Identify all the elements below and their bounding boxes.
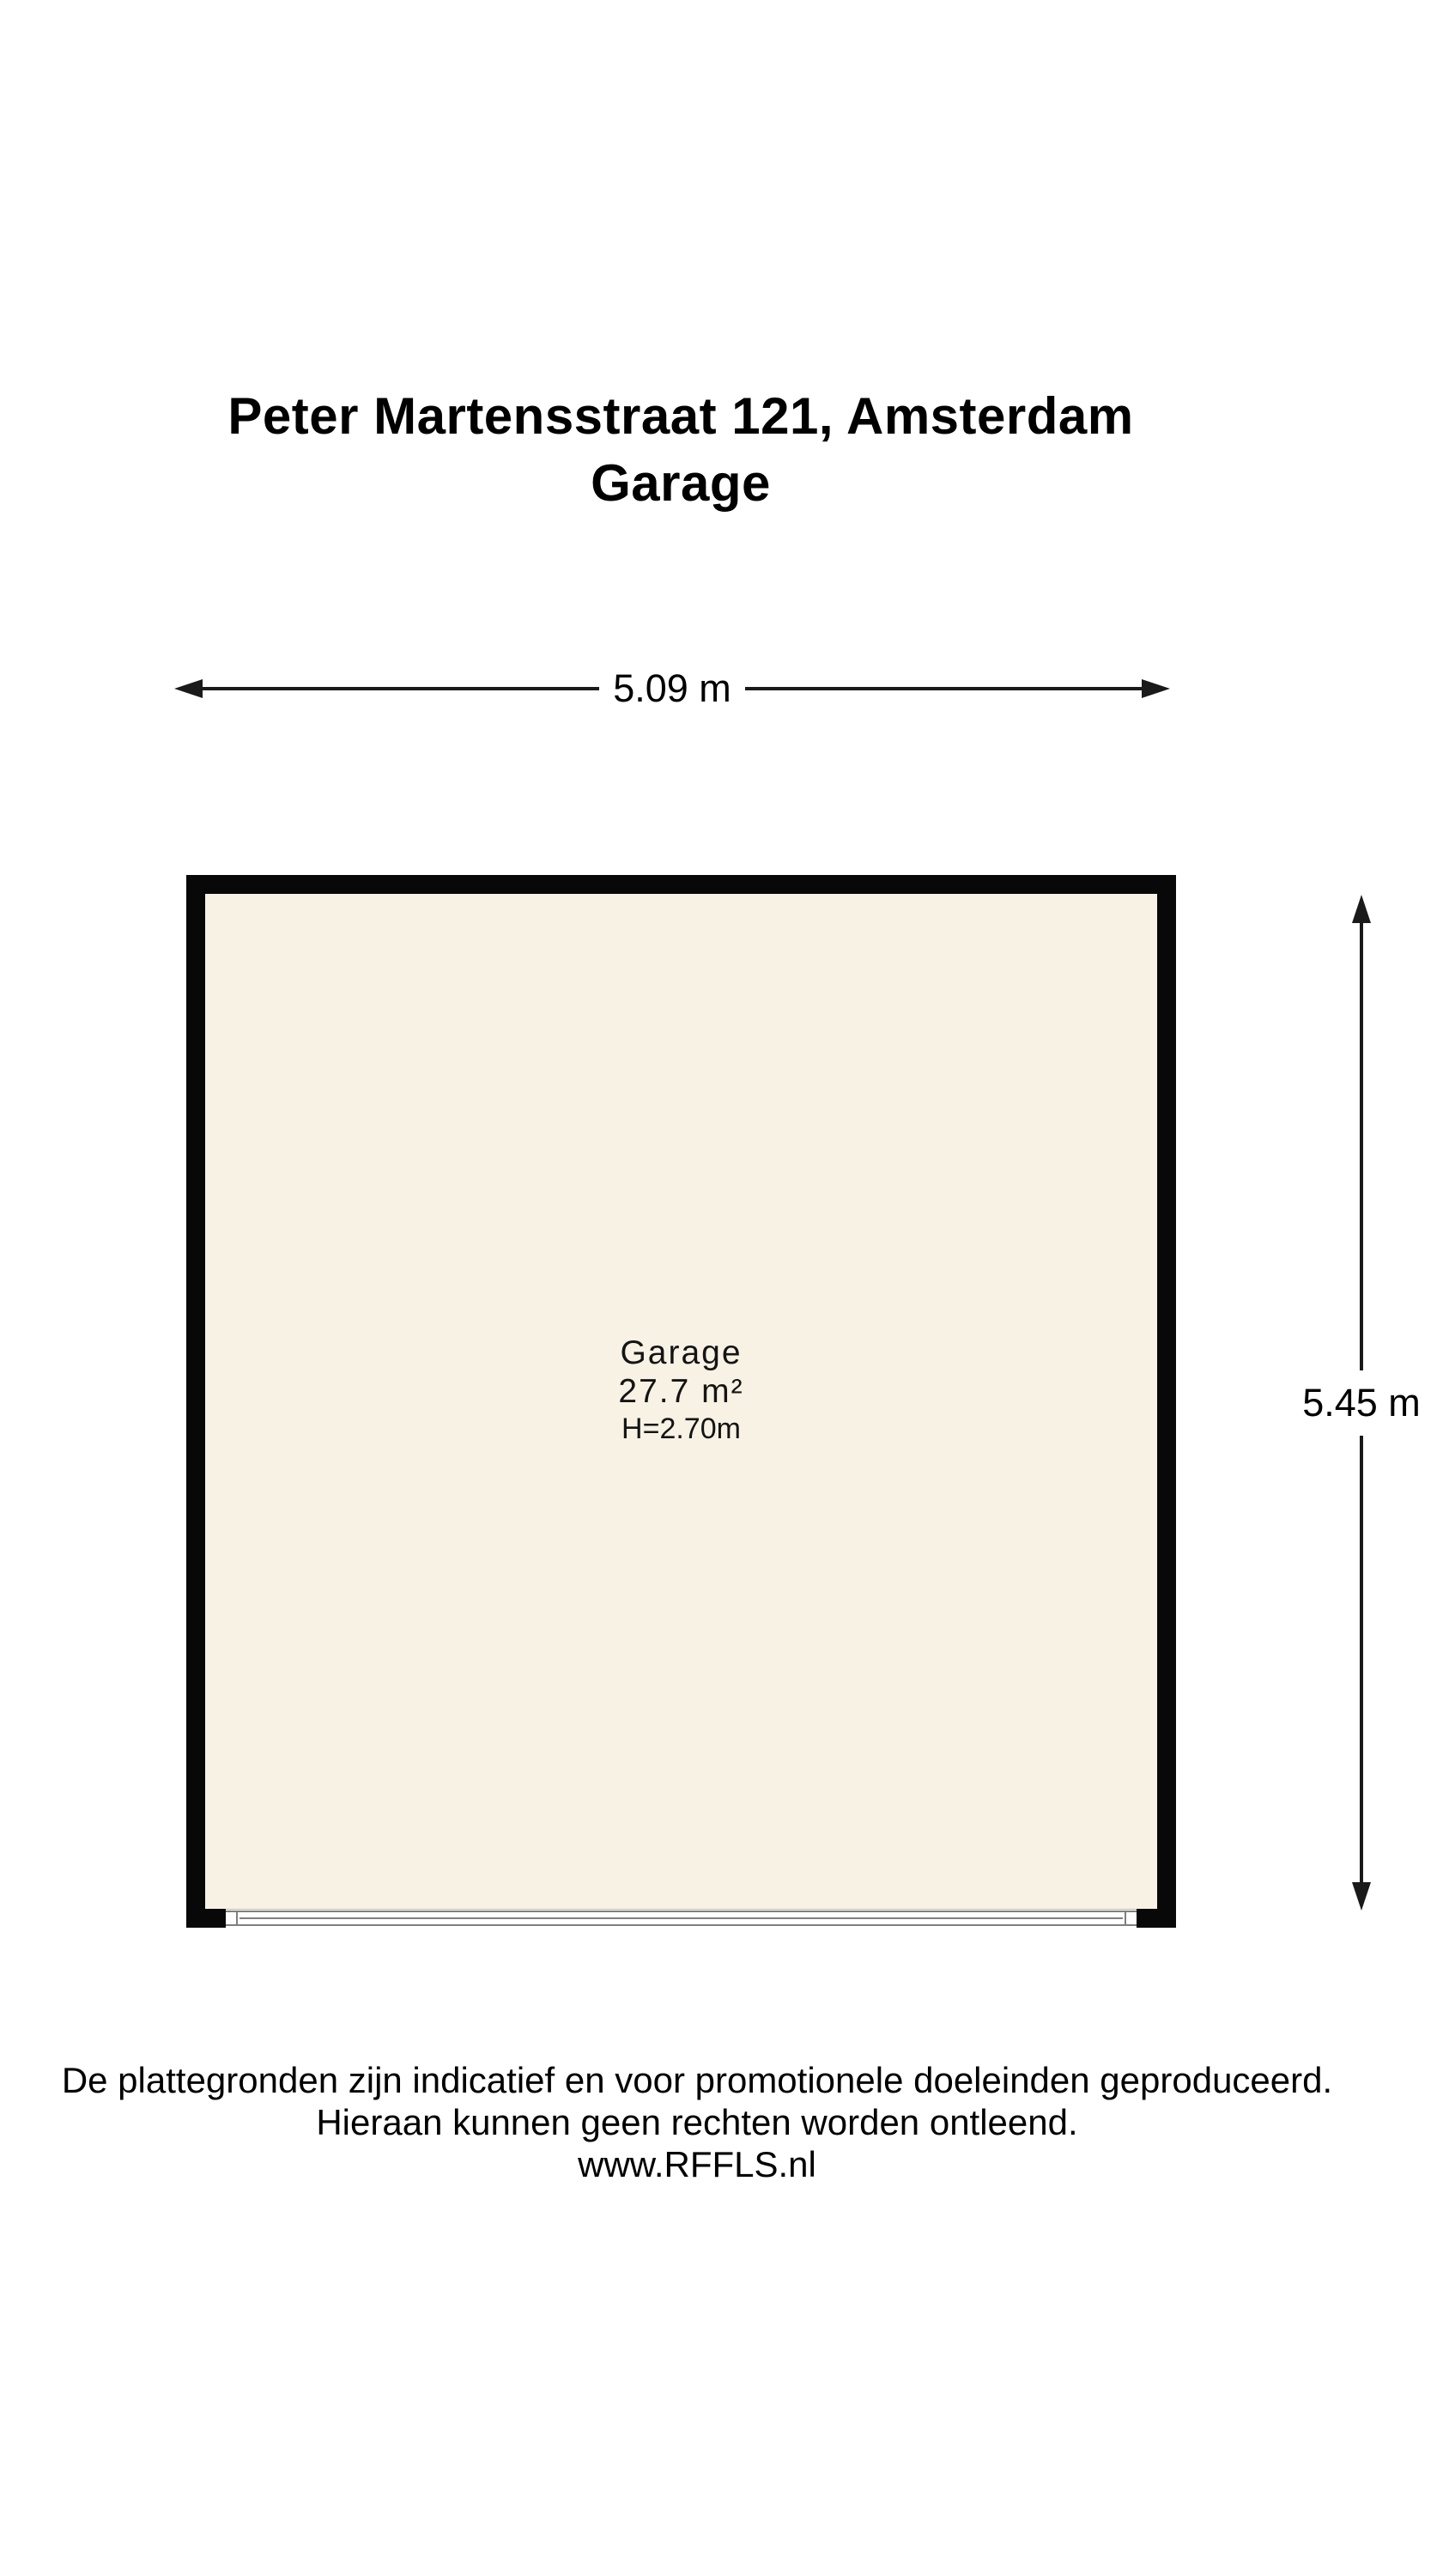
disclaimer: De plattegronden zijn indicatief en voor…	[0, 2059, 1394, 2185]
floorplan-page: Peter Martensstraat 121, Amsterdam Garag…	[0, 0, 1449, 2576]
wall-left	[186, 875, 205, 1928]
room-name-label: Garage	[205, 1334, 1157, 1372]
door-middle-line	[239, 1917, 1123, 1919]
room-ceiling-height-label: H=2.70m	[205, 1411, 1157, 1447]
dimension-line-left	[203, 687, 599, 690]
height-dimension: 5.45 m	[1344, 895, 1379, 1911]
width-dimension-label: 5.09 m	[599, 666, 745, 711]
room-label: Garage 27.7 m² H=2.70m	[205, 1334, 1157, 1447]
wall-top	[186, 875, 1176, 894]
door-cap-left	[236, 1912, 238, 1924]
page-title: Peter Martensstraat 121, Amsterdam Garag…	[0, 383, 1361, 517]
arrow-right-icon	[1142, 679, 1170, 698]
garage-door-symbol	[226, 1911, 1137, 1926]
disclaimer-line-2: Hieraan kunnen geen rechten worden ontle…	[0, 2101, 1394, 2143]
width-dimension: 5.09 m	[174, 670, 1170, 708]
dimension-line-bottom	[1360, 1436, 1363, 1883]
page-title-floor: Garage	[0, 450, 1361, 517]
room-area-label: 27.7 m²	[205, 1372, 1157, 1411]
floor-plan: Garage 27.7 m² H=2.70m	[186, 875, 1176, 1928]
wall-right	[1157, 875, 1176, 1928]
dimension-line-top	[1360, 923, 1363, 1370]
dimension-line-right	[745, 687, 1142, 690]
disclaimer-line-1: De plattegronden zijn indicatief en voor…	[0, 2059, 1394, 2101]
arrow-left-icon	[174, 679, 203, 698]
arrow-down-icon	[1352, 1882, 1371, 1911]
wall-stub-bottom-right	[1137, 1909, 1176, 1928]
arrow-up-icon	[1352, 895, 1371, 923]
page-title-address: Peter Martensstraat 121, Amsterdam	[0, 383, 1361, 450]
disclaimer-line-3: www.RFFLS.nl	[0, 2143, 1394, 2185]
height-dimension-label: 5.45 m	[1302, 1370, 1421, 1436]
door-cap-right	[1125, 1912, 1126, 1924]
wall-stub-bottom-left	[186, 1909, 226, 1928]
